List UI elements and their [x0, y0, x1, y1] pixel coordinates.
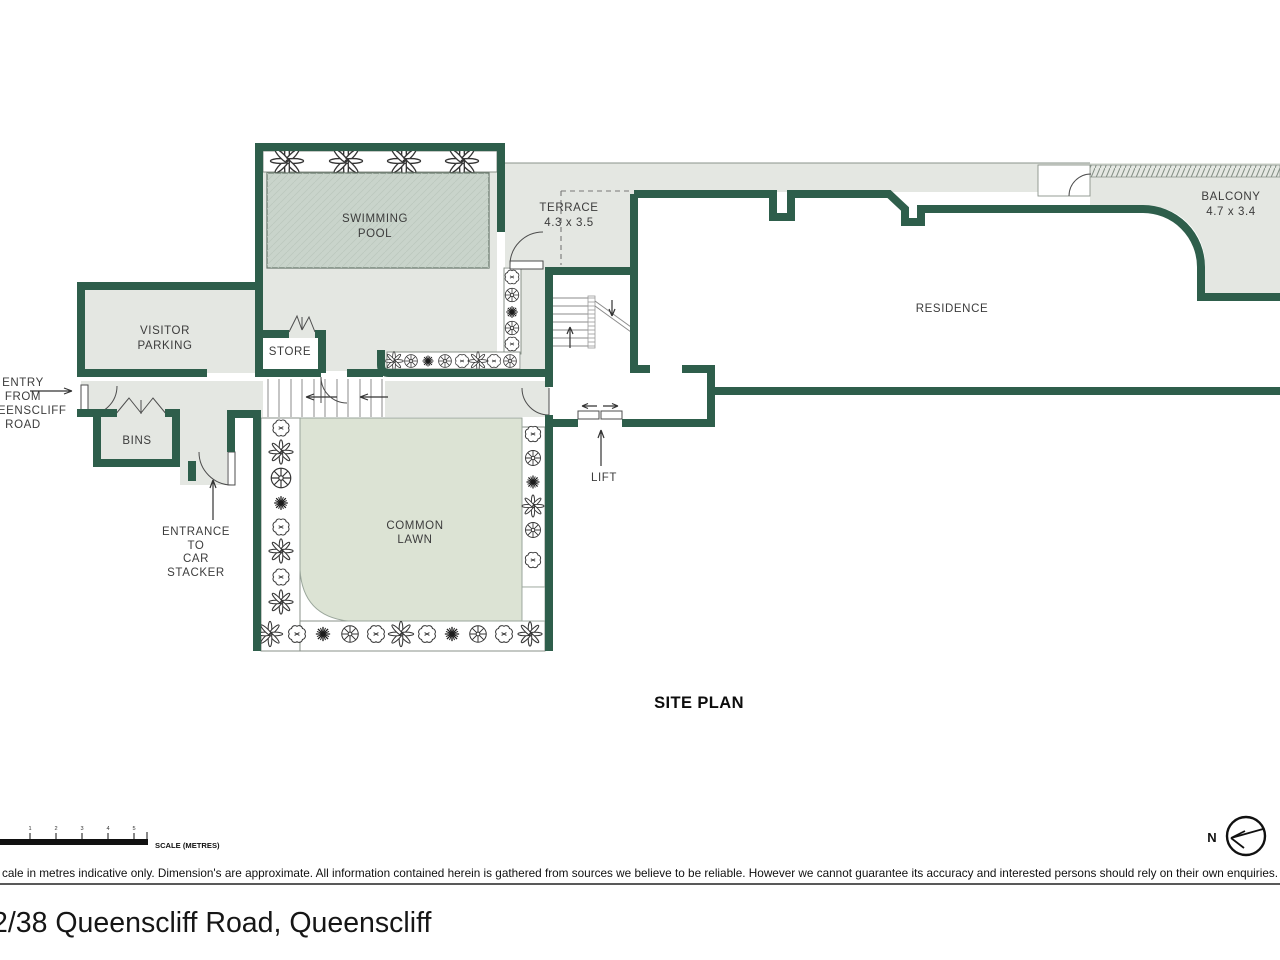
- pool-terrace-door: [510, 261, 543, 269]
- plant-icon: [422, 355, 433, 366]
- plant-icon: [470, 626, 487, 643]
- plant-icon: [518, 622, 542, 646]
- address-text: 2/38 Queenscliff Road, Queenscliff: [0, 907, 431, 939]
- car-stacker-door: [228, 452, 235, 485]
- scale-tick: 4: [106, 826, 109, 832]
- plant-icon: [527, 476, 540, 489]
- scale-label: SCALE (METRES): [155, 841, 220, 850]
- plant-icon: [505, 288, 519, 302]
- page-title: SITE PLAN: [654, 694, 744, 712]
- label-residence: RESIDENCE: [916, 303, 989, 315]
- north-label: N: [1207, 830, 1216, 845]
- north-arrow: N: [1207, 817, 1265, 855]
- scale-tick: 5: [132, 826, 135, 832]
- label-lift: LIFT: [591, 472, 617, 484]
- plant-icon: [439, 355, 452, 368]
- scale-tick: 3: [80, 826, 83, 832]
- plant-icon: [274, 496, 288, 510]
- scale-tick: 1: [28, 826, 31, 832]
- car-stacker-arrow: [210, 480, 216, 520]
- balcony-railing: [1090, 165, 1280, 177]
- plant-icon: [504, 355, 517, 368]
- plant-icon: [445, 627, 459, 641]
- disclaimer-text: cale in metres indicative only. Dimensio…: [2, 866, 1278, 880]
- lift-arrow: [598, 430, 604, 466]
- scale-bar: 1 2 3 4 5 SCALE (METRES): [0, 826, 220, 850]
- footer: cale in metres indicative only. Dimensio…: [0, 866, 1280, 939]
- plant-icon: [469, 352, 488, 371]
- plant-icon: [385, 352, 404, 371]
- plant-icon: [522, 495, 544, 517]
- plant-icon: [526, 523, 541, 538]
- plant-icon: [506, 306, 518, 318]
- label-store: STORE: [269, 346, 311, 358]
- compass-needle: [1231, 829, 1263, 848]
- plant-icon: [269, 440, 293, 464]
- plant-icon: [269, 539, 293, 563]
- site-plan: SWIMMINGPOOL TERRACE4.3 x 3.5 BALCONY4.7…: [0, 0, 1280, 960]
- plant-icon: [388, 621, 413, 646]
- label-car-stacker: ENTRANCETOCARSTACKER: [162, 526, 230, 579]
- compass-circle: [1227, 817, 1265, 855]
- plant-icon: [526, 451, 541, 466]
- label-entry: ENTRYFROMQUEENSCLIFFROAD: [0, 377, 67, 431]
- plant-icon: [342, 626, 359, 643]
- plant-icon: [505, 321, 519, 335]
- scale-tick: 2: [54, 826, 57, 832]
- plant-icon: [316, 627, 330, 641]
- plant-icon: [269, 590, 293, 614]
- label-bins: BINS: [122, 435, 151, 447]
- plant-icon: [271, 468, 291, 488]
- plant-icon: [405, 355, 418, 368]
- plant-icon: [257, 621, 282, 646]
